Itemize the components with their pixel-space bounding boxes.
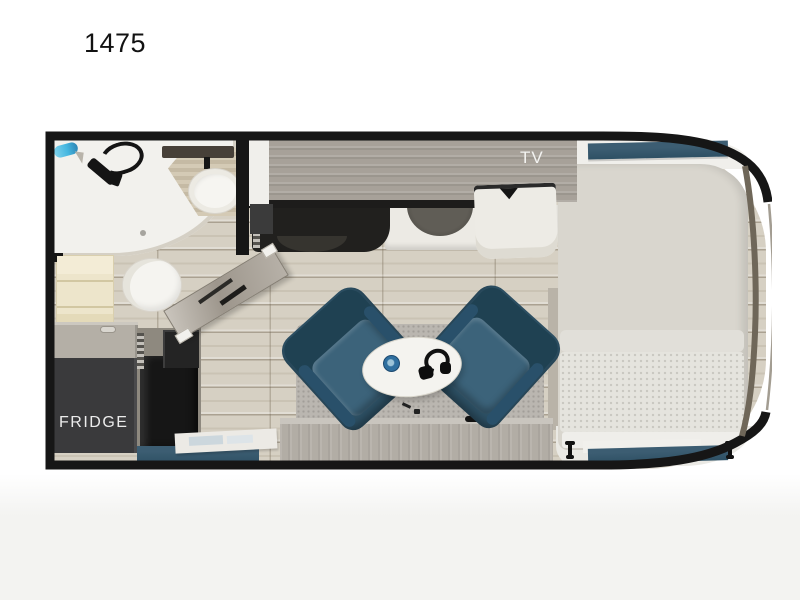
cooktop-arc xyxy=(277,236,347,252)
paper-icon xyxy=(189,435,223,446)
galley-counter xyxy=(48,322,138,362)
tie-down-right-icon xyxy=(723,441,737,460)
rail-icon xyxy=(137,333,144,369)
towel-hook-icon xyxy=(204,157,210,169)
latch-icon xyxy=(100,326,116,333)
bathroom-sink xyxy=(188,168,242,214)
bracket-icon xyxy=(54,253,63,262)
page-title: 1475 xyxy=(84,28,146,59)
cable-icon xyxy=(414,409,420,414)
shelf-line xyxy=(57,306,113,308)
headset-earcup xyxy=(418,364,435,380)
shower-caddy-icon xyxy=(73,151,83,163)
floorplan: TV xyxy=(42,128,772,473)
headset-icon xyxy=(418,349,454,381)
rear-wardrobe xyxy=(280,418,553,465)
fridge: FRIDGE xyxy=(48,358,138,453)
cabinet-end-cap xyxy=(250,204,273,234)
cabinet-edge xyxy=(249,200,477,208)
shelf-line xyxy=(57,280,113,282)
tv-label: TV xyxy=(520,148,544,168)
tie-down-left-icon xyxy=(563,441,577,460)
bed-mattress xyxy=(558,164,748,450)
mirror-shelf xyxy=(162,146,234,158)
front-cap-line xyxy=(767,204,772,410)
head-window-strip xyxy=(588,141,728,160)
headset-earcup xyxy=(440,362,451,374)
nightstand xyxy=(474,183,559,260)
blanket xyxy=(560,352,744,432)
sheet-fold xyxy=(560,330,744,352)
fridge-label: FRIDGE xyxy=(59,414,128,432)
shower-drain xyxy=(140,230,146,236)
paper-icon xyxy=(227,435,253,444)
cabinet-end-panel xyxy=(249,136,269,206)
handle-icon xyxy=(500,188,518,200)
mug-icon xyxy=(383,355,400,372)
